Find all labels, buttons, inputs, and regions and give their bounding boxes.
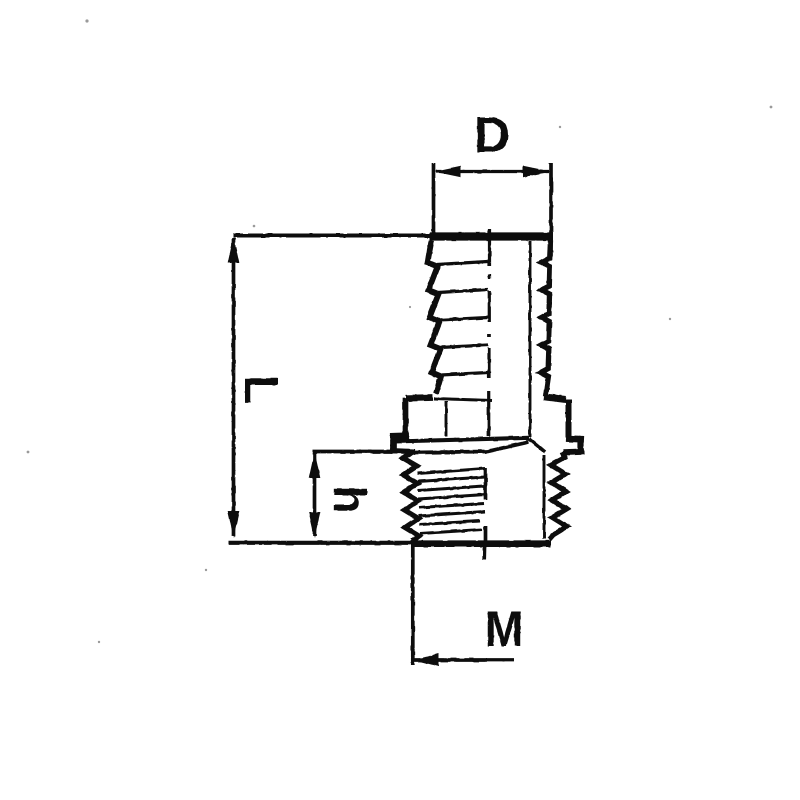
svg-text:D: D: [474, 107, 510, 163]
svg-text:L: L: [235, 375, 288, 404]
svg-text:M: M: [485, 601, 524, 657]
svg-text:h: h: [324, 485, 376, 513]
